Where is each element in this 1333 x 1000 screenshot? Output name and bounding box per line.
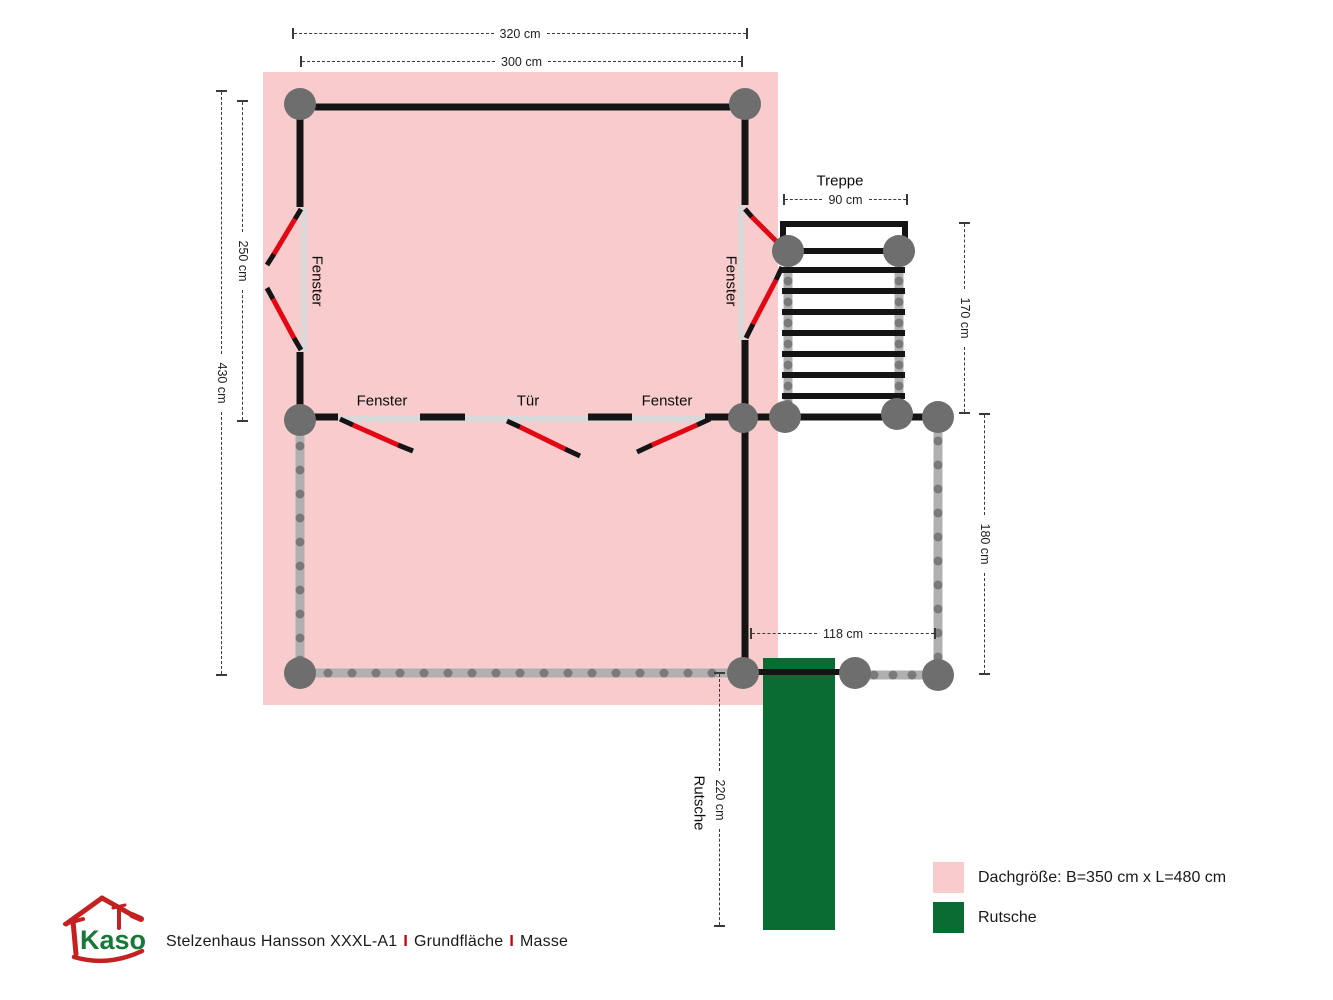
dimension-430cm: 430 cm <box>215 90 228 676</box>
dimension-label: 220 cm <box>713 779 727 820</box>
label-tuer: Tür <box>517 393 540 410</box>
kaso-logo: Kaso <box>56 890 170 984</box>
stair-rail-dots <box>784 277 904 409</box>
dimension-180cm: 180 cm <box>978 413 991 675</box>
dimension-label: 118 cm <box>817 627 869 641</box>
rail-dots <box>296 437 943 680</box>
label-fenster-bottom-right: Fenster <box>642 393 693 410</box>
dimension-90cm: 90 cm <box>783 193 908 206</box>
window-sills <box>304 205 741 419</box>
footer-title: Stelzenhaus Hansson XXXL-A1IGrundflächeI… <box>166 933 568 951</box>
plan-drawing <box>0 0 1333 1000</box>
dimension-label: 90 cm <box>822 193 868 207</box>
label-fenster-right: Fenster <box>723 256 740 307</box>
dimension-170cm: 170 cm <box>958 222 971 414</box>
legend-item-roof: Dachgröße: B=350 cm x L=480 cm <box>933 862 1226 893</box>
dimension-118cm: 118 cm <box>750 627 936 640</box>
label-rutsche: Rutsche <box>691 775 708 830</box>
dimension-label: 250 cm <box>236 241 250 282</box>
dimension-320cm: 320 cm <box>292 27 748 40</box>
dimension-label: 170 cm <box>958 298 972 339</box>
label-fenster-bottom-left: Fenster <box>357 393 408 410</box>
label-treppe: Treppe <box>817 173 864 190</box>
legend-item-slide: Rutsche <box>933 902 1037 933</box>
footer-separator: I <box>503 933 520 950</box>
footer-section-masse: Masse <box>520 933 568 950</box>
house-walls <box>297 104 748 421</box>
footer-product-name: Stelzenhaus Hansson XXXL-A1 <box>166 933 397 950</box>
legend-label-roof: Dachgröße: B=350 cm x L=480 cm <box>978 869 1226 887</box>
legend-swatch-slide <box>933 902 964 933</box>
dimension-300cm: 300 cm <box>300 55 743 68</box>
dimension-label: 300 cm <box>495 55 548 69</box>
footer-section-grundflaeche: Grundfläche <box>414 933 503 950</box>
logo-text: Kaso <box>80 925 146 955</box>
label-fenster-left: Fenster <box>309 256 326 307</box>
dimension-250cm: 250 cm <box>236 100 249 422</box>
footer-separator: I <box>397 933 414 950</box>
dimension-label: 180 cm <box>978 524 992 565</box>
floor-plan-page: 320 cm 300 cm 90 cm 118 cm 250 cm 430 cm… <box>0 0 1333 1000</box>
dimension-label: 430 cm <box>215 363 229 404</box>
legend-label-slide: Rutsche <box>978 909 1037 927</box>
legend-swatch-roof <box>933 862 964 893</box>
slide <box>763 658 835 930</box>
dimension-label: 320 cm <box>494 27 547 41</box>
dimension-220cm: 220 cm <box>713 672 726 927</box>
